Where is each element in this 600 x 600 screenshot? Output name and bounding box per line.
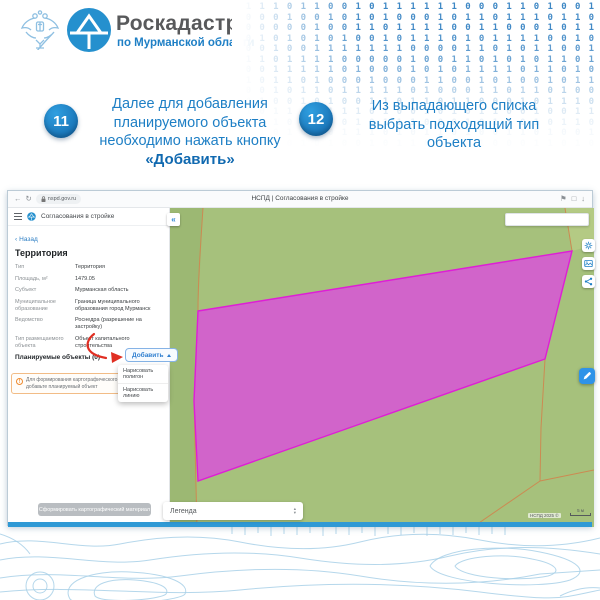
map-basemap-button[interactable]: [582, 257, 595, 270]
details-panel: Согласования в стройке ‹ Назад Территори…: [8, 208, 170, 527]
generate-material-button[interactable]: Сформировать картографический материал: [38, 503, 151, 516]
tab-title: НСПД | Согласования в стройке: [8, 195, 592, 202]
legend-expand-icon[interactable]: ▴ ▾: [294, 507, 296, 515]
menu-item-draw-line[interactable]: Нарисовать линию: [118, 383, 168, 402]
share-icon: [584, 277, 593, 286]
map-area[interactable]: «: [170, 208, 594, 527]
brand-name: Роскадастр: [116, 12, 239, 36]
map-search-input[interactable]: [505, 213, 589, 226]
step-12-text: Из выпадающего списка выбрать подходящий…: [340, 97, 568, 153]
attribute-row: Субъект Мурманская область: [15, 287, 165, 294]
add-button-label: Добавить: [132, 352, 163, 359]
contour-pattern: [0, 526, 600, 600]
footer-blue-strip: [8, 522, 592, 527]
step-12-badge: 12: [299, 102, 333, 136]
app-header: Согласования в стройке: [8, 208, 169, 226]
warning-icon: !: [16, 378, 23, 385]
menu-item-draw-polygon[interactable]: Нарисовать полигон: [118, 365, 168, 383]
red-annotation-arrow: [76, 332, 128, 366]
map-attribution: НСПД 2025 ©: [528, 513, 561, 518]
attribute-row: Муниципальное образование Граница муници…: [15, 299, 165, 313]
image-icon: [584, 259, 593, 268]
app-title: Согласования в стройке: [41, 213, 114, 220]
browser-right-controls: ⚑ □ ↓: [560, 194, 585, 204]
add-button[interactable]: Добавить: [125, 348, 178, 362]
legend-toggle[interactable]: Легенда ▴ ▾: [163, 502, 303, 520]
pen-icon: [582, 371, 592, 381]
step-12-line-3: объекта: [340, 134, 568, 153]
map-canvas: [170, 208, 594, 527]
add-dropdown-menu: Нарисовать полигон Нарисовать линию: [118, 365, 168, 402]
step-11-badge: 11: [44, 104, 78, 138]
step-12-line-1: Из выпадающего списка: [340, 97, 568, 116]
app-logo-icon: [27, 212, 36, 221]
map-share-button[interactable]: [582, 275, 595, 288]
download-icon[interactable]: ↓: [581, 194, 585, 204]
menu-icon[interactable]: [14, 213, 22, 220]
gear-icon: [584, 241, 593, 250]
step-11-bold-line: «Добавить»: [84, 151, 296, 170]
map-settings-button[interactable]: [582, 239, 595, 252]
attribute-row: Ведомство Роснедра (разрешение на застро…: [15, 317, 165, 331]
step-12-line-2: выбрать подходящий тип: [340, 116, 568, 135]
map-scale: 5 м: [570, 508, 591, 516]
back-label: Назад: [19, 236, 38, 243]
browser-window: ← ↻ nspd.gov.ru НСПД | Согласования в ст…: [7, 190, 593, 526]
window-icon[interactable]: □: [572, 194, 577, 204]
panel-collapse-button[interactable]: «: [167, 213, 180, 226]
step-11-line-1: Далее для добавления: [84, 95, 296, 114]
chevron-up-icon: [167, 354, 171, 357]
infographic-canvas: 0111011001011111100011010011000100101010…: [0, 0, 600, 600]
step-11-line-2: планируемого объекта: [84, 114, 296, 133]
coat-of-arms-emblem: [18, 8, 62, 55]
map-scale-line: [570, 513, 591, 516]
roskadastr-logo-icon: [66, 7, 112, 58]
legend-label: Легенда: [170, 508, 197, 515]
browser-chrome-bar: ← ↻ nspd.gov.ru НСПД | Согласования в ст…: [8, 191, 592, 208]
attribute-row: Площадь, м² 1479.05: [15, 276, 165, 283]
step-11-line-3: необходимо нажать кнопку: [84, 132, 296, 151]
back-link[interactable]: ‹ Назад: [15, 236, 38, 243]
territory-heading: Территория: [15, 248, 68, 258]
step-11-text: Далее для добавления планируемого объект…: [84, 95, 296, 169]
draw-tool-button[interactable]: [579, 368, 595, 384]
back-chevron-icon: ‹: [15, 236, 17, 243]
attribute-row: Тип Территория: [15, 264, 165, 271]
bookmark-icon[interactable]: ⚑: [560, 194, 567, 204]
